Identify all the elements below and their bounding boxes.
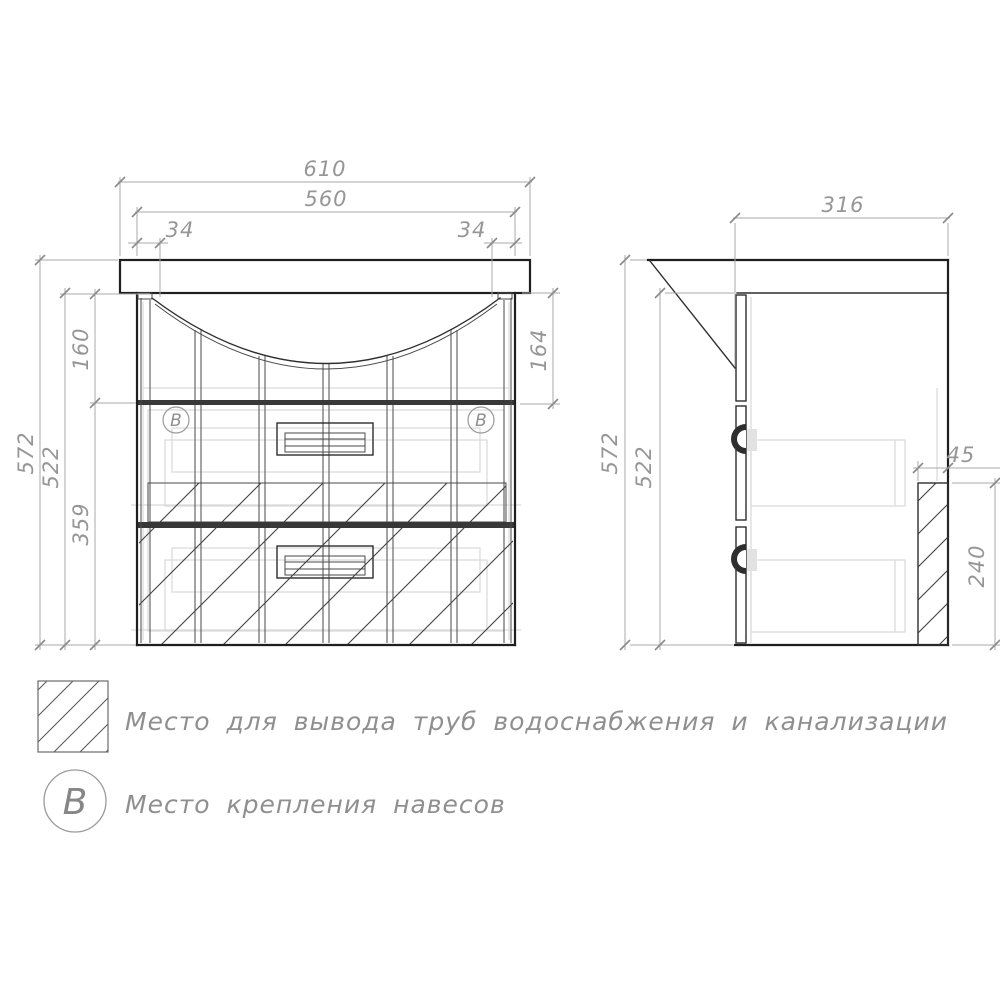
dim-front-cabinet-width: 560 [304,187,347,211]
sink-bowl-curve [152,298,500,369]
pipe-zone-band [148,483,506,522]
pipe-zone-lower [139,528,513,644]
side-view [648,260,948,645]
front-view: В В [120,260,530,645]
side-pipe-zone [918,483,948,645]
side-handle-top [731,424,757,454]
side-internal-lines [751,297,937,643]
legend: Место для вывода труб водоснабжения и ка… [38,681,948,832]
dim-front-offset-left: 34 [166,218,195,242]
side-countertop [648,260,948,368]
dim-front-total-height: 572 [14,431,38,474]
legend-mount-marker-letter: В [63,782,88,823]
dim-side-pipe-zone-width: 45 [947,443,976,467]
dim-front-apron-height: 160 [69,327,93,370]
dim-side-depth: 316 [821,193,864,217]
legend-hatch-swatch [38,681,108,752]
technical-drawing-page: В В [0,0,1000,1000]
side-handle-bottom [731,544,757,574]
dim-side-total-height: 572 [598,431,622,474]
dim-front-basin-depth: 164 [527,328,551,371]
vanity-cabinet-drawing: В В [0,0,1000,1000]
mount-marker-left-letter: В [170,411,182,431]
front-countertop [120,260,530,299]
dim-side-pipe-zone-height: 240 [965,544,989,587]
mount-marker-right-letter: В [475,411,487,431]
dim-side-cabinet-height: 522 [632,445,656,488]
mount-marker-left: В [163,407,189,433]
legend-mount-label: Место крепления навесов [125,790,506,819]
legend-pipe-zone-label: Место для вывода труб водоснабжения и ка… [125,707,948,736]
dim-front-total-width: 610 [303,157,346,181]
dim-front-offset-right: 34 [458,218,487,242]
mount-marker-right: В [468,407,494,433]
dim-front-drawers-height: 359 [69,502,93,545]
side-front-panels [736,295,746,643]
dim-front-cabinet-height: 522 [39,445,63,488]
